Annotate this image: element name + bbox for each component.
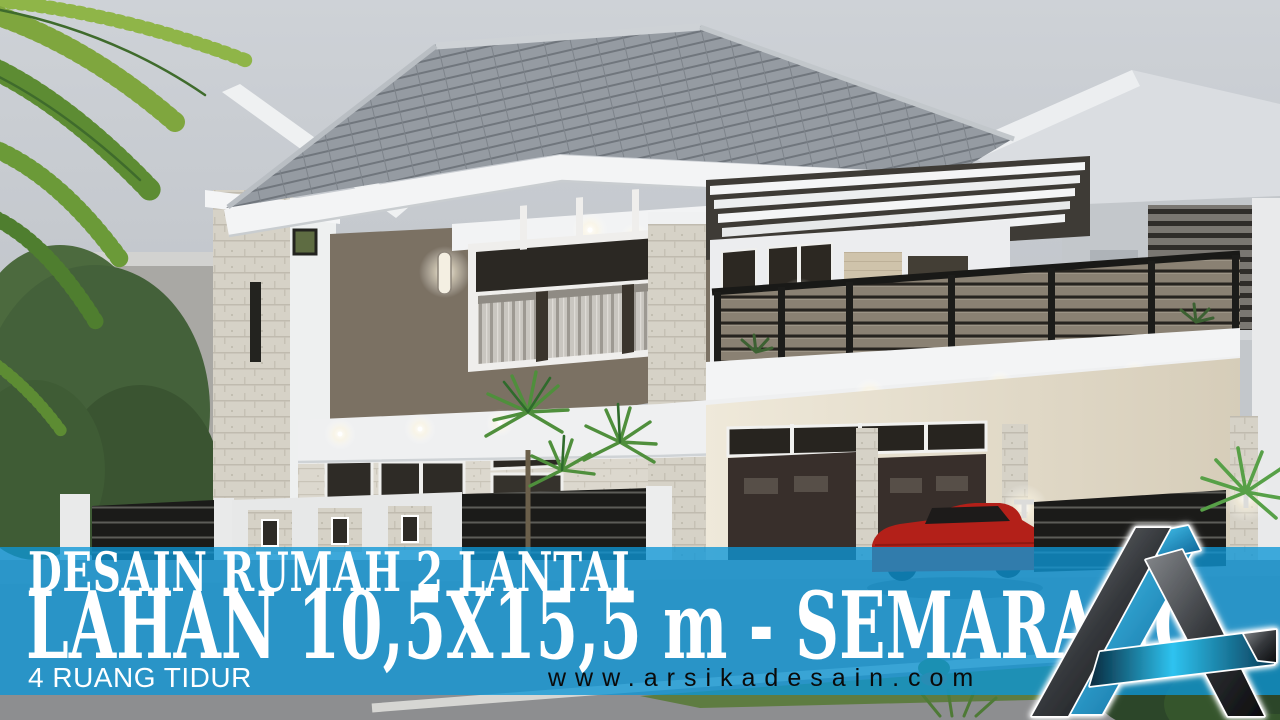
website-url: www.arsikadesain.com (548, 666, 982, 691)
caption-banner: DESAIN RUMAH 2 LANTAI LAHAN 10,5X15,5 m … (0, 547, 1280, 695)
caption-line-2: LAHAN 10,5X15,5 m - SEMARANG (26, 579, 1206, 672)
caption-line-3: 4 RUANG TIDUR (28, 664, 252, 692)
video-thumbnail: DESAIN RUMAH 2 LANTAI LAHAN 10,5X15,5 m … (0, 0, 1280, 720)
